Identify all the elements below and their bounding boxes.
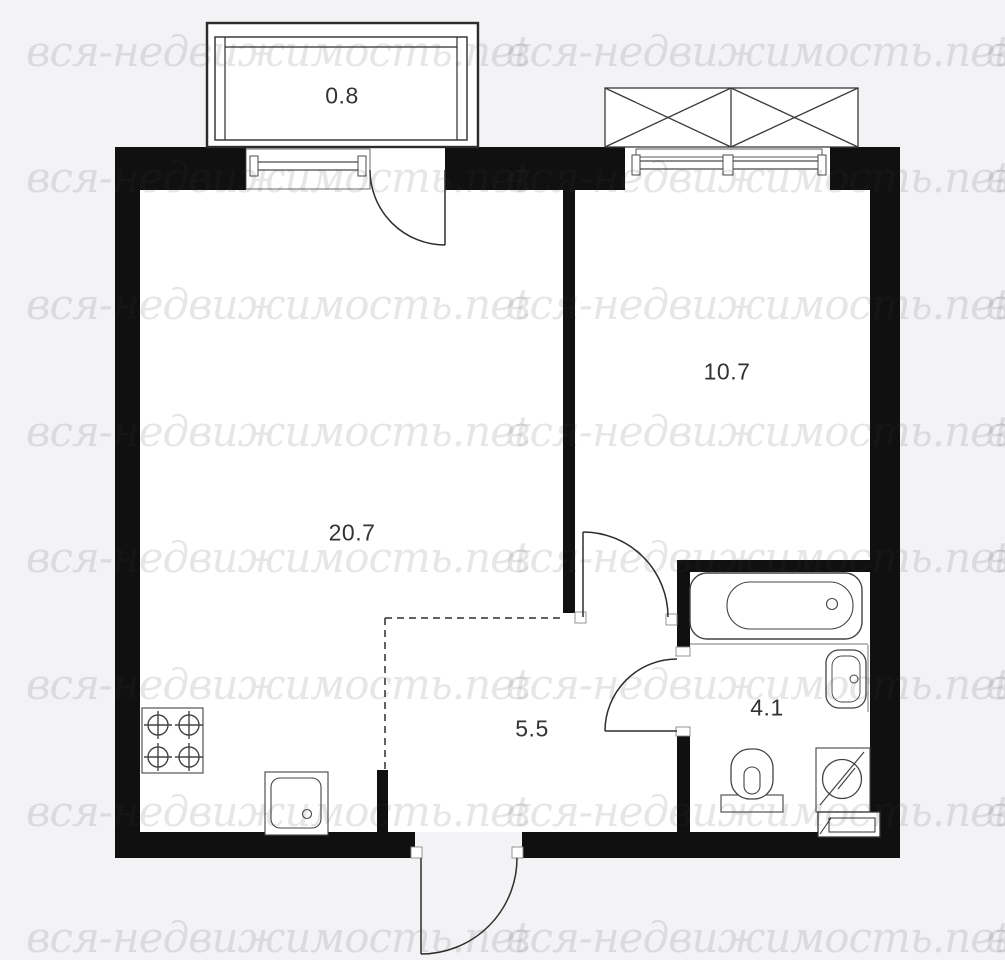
wall-bathroom-top [677, 560, 873, 572]
window-cap [358, 156, 366, 176]
window-cap [818, 155, 826, 175]
room-area-label-bathroom: 4.1 [747, 695, 786, 722]
jamb [411, 847, 422, 858]
room-area-label-balcony: 0.8 [322, 83, 361, 110]
window-living [246, 149, 370, 189]
room-area-label-hallway: 5.5 [512, 716, 551, 743]
washing-machine-icon [816, 748, 870, 812]
vent-box [818, 812, 880, 837]
jamb [676, 647, 690, 656]
toilet-bowl [731, 749, 773, 799]
washbasin-icon [826, 645, 868, 712]
jamb [575, 612, 586, 623]
window-cap [250, 156, 258, 176]
wall-bathroom-left-upper [677, 560, 690, 648]
wall-bathroom-left-lower [677, 735, 690, 832]
jamb [512, 847, 523, 858]
wall-bottom-left [115, 832, 415, 858]
room-area-label-living-kitchen: 20.7 [326, 520, 379, 547]
wall-hallway-stub [377, 770, 388, 832]
apartment-interior [140, 190, 870, 832]
wall-right [870, 147, 900, 858]
stove-icon [142, 708, 203, 773]
window-cap [632, 155, 640, 175]
ac-basket [605, 88, 858, 147]
kitchen-sink-icon [265, 772, 328, 835]
window-cap [723, 155, 733, 175]
room-area-label-bedroom: 10.7 [701, 359, 754, 386]
floorplan-drawing [0, 0, 1005, 960]
bathtub-icon [690, 573, 868, 644]
wall-left [115, 147, 140, 858]
vent-grille-icon [818, 812, 880, 837]
wall-living-bedroom [563, 190, 575, 613]
jamb [676, 727, 690, 736]
window-box [246, 149, 370, 189]
floorplan-page: 0.8 20.7 10.7 5.5 4.1 вся-недвижимость.n… [0, 0, 1005, 960]
door-entrance [421, 858, 517, 954]
